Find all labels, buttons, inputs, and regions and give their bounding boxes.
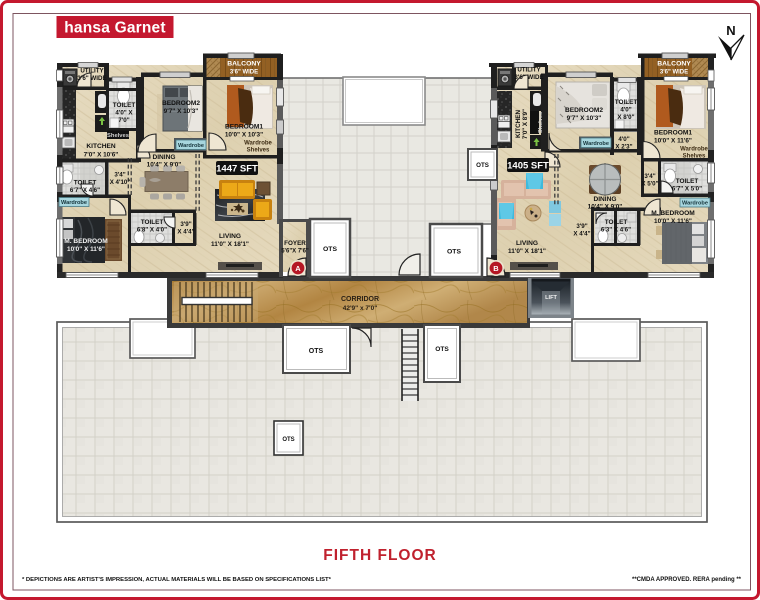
svg-text:M. BEDROOM: M. BEDROOM: [651, 210, 695, 217]
svg-text:KITCHEN: KITCHEN: [86, 143, 116, 150]
svg-text:OTS: OTS: [476, 162, 489, 169]
svg-text:* DEPICTIONS ARE ARTIST'S IMPR: * DEPICTIONS ARE ARTIST'S IMPRESSION, AC…: [22, 577, 332, 583]
svg-text:**CMDA APPROVED. RERA pending: **CMDA APPROVED. RERA pending **: [632, 577, 742, 583]
svg-text:TOILET: TOILET: [676, 178, 699, 185]
svg-text:DINING: DINING: [593, 196, 616, 203]
svg-text:4'0" X: 4'0" X: [115, 110, 133, 117]
svg-text:10'0" X 11'6": 10'0" X 11'6": [67, 246, 105, 253]
svg-text:LIVING: LIVING: [219, 233, 241, 240]
svg-text:3'4": 3'4": [644, 173, 655, 180]
svg-text:KITCHEN: KITCHEN: [515, 110, 522, 138]
svg-text:OTS: OTS: [323, 246, 337, 253]
svg-text:BEDROOM2: BEDROOM2: [162, 100, 200, 107]
svg-text:M. BEDROOM: M. BEDROOM: [64, 238, 108, 245]
svg-text:3'4": 3'4": [114, 172, 125, 179]
svg-text:10'4" X 9'0": 10'4" X 9'0": [588, 204, 623, 211]
svg-text:3'6" WIDE: 3'6" WIDE: [77, 75, 106, 82]
svg-text:FOYER: FOYER: [284, 240, 306, 247]
svg-text:6'7" X 5'0": 6'7" X 5'0": [672, 186, 702, 193]
svg-text:10'0" X 11'6": 10'0" X 11'6": [654, 138, 692, 145]
svg-text:9'7" X 10'3": 9'7" X 10'3": [567, 115, 602, 122]
svg-text:11'0" X 18'1": 11'0" X 18'1": [508, 248, 546, 255]
svg-text:11'0" X 18'1": 11'0" X 18'1": [211, 241, 249, 248]
svg-text:Wardrobe: Wardrobe: [583, 141, 609, 147]
svg-text:TOILET: TOILET: [141, 219, 164, 226]
svg-text:3'6" WIDE: 3'6" WIDE: [514, 74, 543, 81]
svg-text:BEDROOM1: BEDROOM1: [654, 130, 692, 137]
svg-text:6'8" X 4'0": 6'8" X 4'0": [137, 227, 167, 234]
svg-text:42'9" x 7'0": 42'9" x 7'0": [343, 305, 378, 312]
svg-text:7'0" X 10'6": 7'0" X 10'6": [84, 152, 119, 159]
svg-text:UTILITY: UTILITY: [80, 68, 104, 75]
svg-text:X 2'3": X 2'3": [615, 144, 632, 151]
svg-text:1447 SFT: 1447 SFT: [216, 164, 258, 175]
svg-text:A: A: [295, 264, 301, 273]
svg-text:DINING: DINING: [152, 154, 175, 161]
svg-text:6'3" X 4'6": 6'3" X 4'6": [601, 227, 631, 234]
svg-text:Wardrobe: Wardrobe: [682, 201, 708, 207]
svg-text:4'0": 4'0": [620, 107, 631, 114]
svg-text:BEDROOM1: BEDROOM1: [225, 124, 263, 131]
svg-text:1405 SFT: 1405 SFT: [507, 161, 549, 172]
svg-text:6'7" X 4'6": 6'7" X 4'6": [70, 187, 100, 194]
svg-text:5'6"X 7'6": 5'6"X 7'6": [281, 249, 309, 255]
svg-text:X 4'4": X 4'4": [177, 229, 194, 236]
svg-text:10'0" X 10'3": 10'0" X 10'3": [225, 132, 263, 139]
svg-text:3'9": 3'9": [576, 223, 587, 230]
svg-text:FIFTH FLOOR: FIFTH FLOOR: [323, 547, 436, 564]
svg-text:Wardrobe: Wardrobe: [680, 147, 708, 153]
svg-text:hansa Garnet: hansa Garnet: [64, 20, 165, 37]
svg-text:BALCONY: BALCONY: [227, 61, 261, 68]
svg-text:3'6" WIDE: 3'6" WIDE: [660, 70, 688, 76]
svg-text:BEDROOM2: BEDROOM2: [565, 107, 603, 114]
svg-text:Shelves: Shelves: [538, 112, 544, 133]
svg-text:TOILET: TOILET: [615, 99, 638, 106]
svg-text:Wardrobe: Wardrobe: [244, 141, 272, 147]
svg-text:OTS: OTS: [447, 249, 461, 256]
svg-text:7'0" X 8'9": 7'0" X 8'9": [522, 109, 529, 139]
svg-text:X 8'0": X 8'0": [617, 114, 634, 121]
svg-text:Shelves: Shelves: [247, 148, 270, 154]
svg-text:3'9": 3'9": [180, 221, 191, 228]
svg-text:Shelves: Shelves: [107, 133, 129, 139]
svg-text:LIFT: LIFT: [545, 295, 557, 301]
svg-text:UTILITY: UTILITY: [517, 67, 541, 74]
svg-text:N: N: [726, 23, 735, 38]
svg-text:TOILET: TOILET: [74, 180, 97, 187]
svg-text:10'4" X 9'0": 10'4" X 9'0": [147, 162, 182, 169]
svg-text:Wardrobe: Wardrobe: [61, 200, 87, 206]
svg-text:LIVING: LIVING: [516, 240, 538, 247]
svg-text:OTS: OTS: [435, 346, 449, 353]
svg-text:4'0": 4'0": [618, 136, 629, 143]
svg-text:X 5'0": X 5'0": [641, 181, 658, 188]
svg-text:X 4'4": X 4'4": [573, 231, 590, 238]
svg-text:CORRIDOR: CORRIDOR: [341, 296, 379, 303]
svg-text:BALCONY: BALCONY: [657, 61, 691, 68]
svg-text:OTS: OTS: [282, 437, 294, 443]
svg-text:7'0": 7'0": [118, 117, 129, 124]
svg-text:10'0" X 11'6": 10'0" X 11'6": [654, 218, 692, 225]
svg-text:Shelves: Shelves: [683, 154, 706, 160]
svg-text:Wardrobe: Wardrobe: [178, 143, 204, 149]
svg-text:9'7" X 10'3": 9'7" X 10'3": [164, 108, 199, 115]
svg-text:TOILET: TOILET: [605, 219, 628, 226]
svg-text:OTS: OTS: [309, 348, 324, 355]
svg-text:TOILET: TOILET: [113, 102, 136, 109]
svg-text:3'6" WIDE: 3'6" WIDE: [230, 70, 258, 76]
svg-text:B: B: [493, 264, 499, 273]
svg-text:X 4'10": X 4'10": [110, 179, 131, 186]
